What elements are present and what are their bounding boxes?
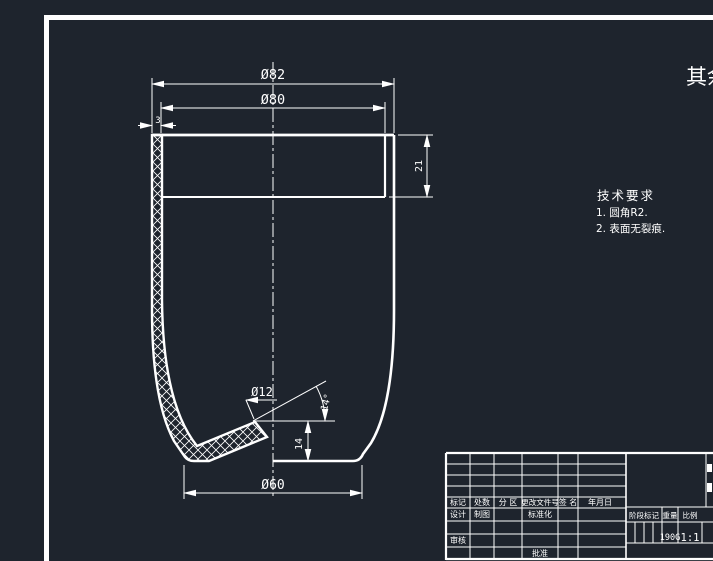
- clipped-glyph: [707, 483, 712, 492]
- corner-note-text: 其余: [686, 65, 713, 89]
- tb-count-label: 处数: [474, 497, 490, 507]
- tb-change-doc-label: 更改文件号: [521, 497, 559, 507]
- technical-requirements: 技术要求 1. 圆角R2. 2. 表面无裂痕.: [596, 188, 665, 235]
- tech-req-title: 技术要求: [597, 188, 655, 203]
- tech-req-item-1: 1. 圆角R2.: [596, 207, 648, 219]
- tb-date-label: 年月日: [588, 497, 612, 507]
- dim-label-angle: 14°: [319, 393, 334, 412]
- tb-design-label: 设计: [450, 509, 466, 519]
- dim-hole-diameter: Ø12: [246, 385, 277, 419]
- dim-label-d80: Ø80: [261, 92, 285, 108]
- dim-label-d60: Ø60: [261, 478, 284, 493]
- part-outline-right: [273, 135, 394, 461]
- tb-audit-label: 审核: [450, 535, 466, 545]
- tb-scale-value: 1:1: [681, 532, 700, 544]
- tb-stage-mark-label: 阶段标记: [629, 510, 659, 520]
- tb-signature-label: 签 名: [559, 497, 578, 507]
- tb-weight-value: 190G: [660, 533, 680, 543]
- tb-zone-label: 分 区: [499, 498, 518, 507]
- cad-viewport[interactable]: Ø82 Ø80 3 21 Ø12 14° 14: [0, 0, 713, 561]
- dim-label-d12: Ø12: [251, 385, 273, 399]
- sheet-frame: [44, 15, 713, 561]
- drawing-canvas[interactable]: Ø82 Ø80 3 21 Ø12 14° 14: [0, 0, 713, 561]
- clipped-glyph: [707, 464, 712, 472]
- tb-draft-label: 制图: [474, 509, 490, 519]
- tb-standardization-label: 标准化: [528, 509, 552, 519]
- dim-label-wall: 3: [155, 116, 160, 126]
- part-section-left-wall: [152, 135, 267, 461]
- dim-rim-height: 21: [389, 135, 433, 197]
- tb-weight-label: 重量: [663, 511, 678, 520]
- tb-approve-label: 批准: [532, 548, 548, 558]
- tb-mark-label: 标记: [450, 497, 466, 507]
- dim-label-d82: Ø82: [261, 67, 285, 83]
- dim-label-rim-height: 21: [414, 160, 425, 172]
- tech-req-item-2: 2. 表面无裂痕.: [596, 222, 665, 235]
- dim-label-hole-height: 14: [294, 438, 305, 450]
- dim-wall-thickness: 3: [138, 116, 176, 126]
- tb-scale-label: 比例: [683, 510, 698, 520]
- surface-finish-note: 其余: [686, 65, 713, 89]
- dim-hole-height: 14: [294, 421, 308, 461]
